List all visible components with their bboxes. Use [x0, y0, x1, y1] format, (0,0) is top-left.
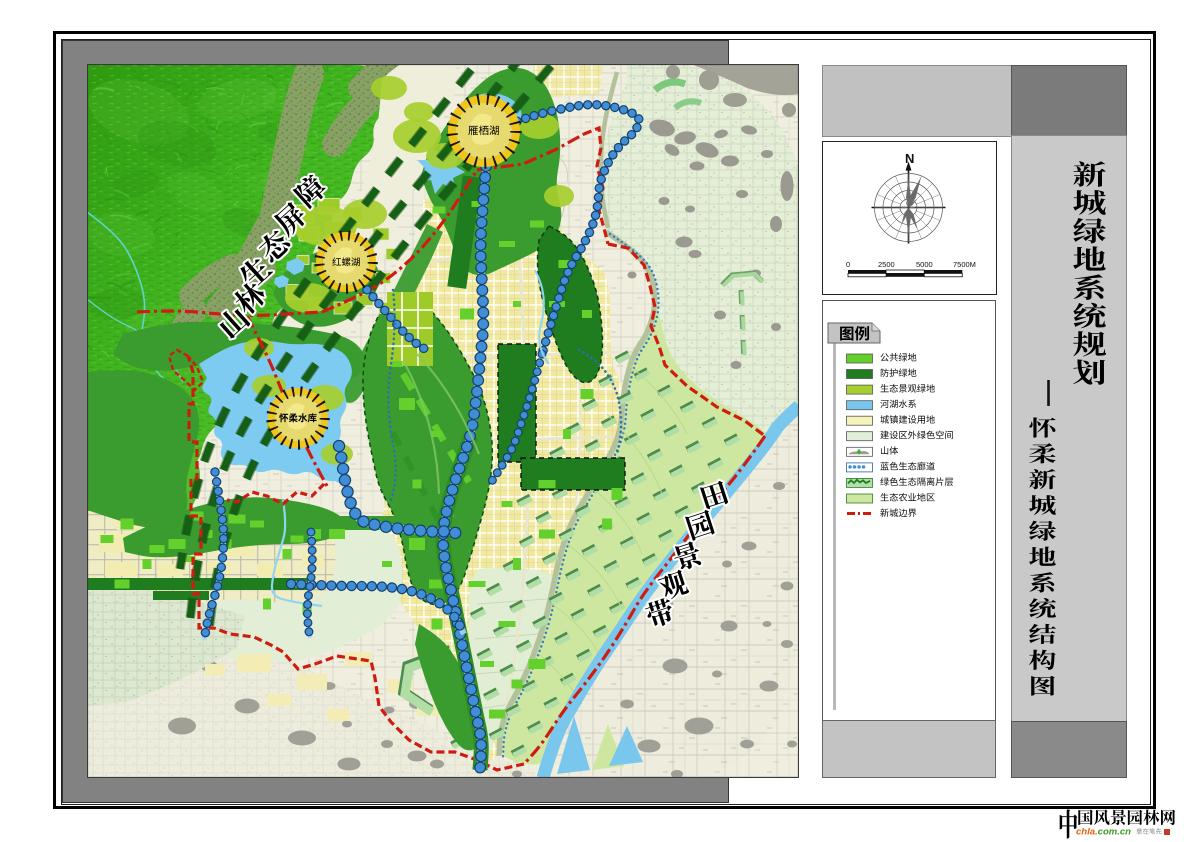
svg-text:N: N	[905, 151, 914, 166]
svg-text:5000: 5000	[916, 260, 933, 269]
svg-text:chla.com.cn: chla.com.cn	[1076, 827, 1131, 838]
svg-text:0: 0	[846, 260, 850, 269]
svg-text:7500M: 7500M	[953, 260, 976, 269]
svg-text:2500: 2500	[878, 260, 895, 269]
